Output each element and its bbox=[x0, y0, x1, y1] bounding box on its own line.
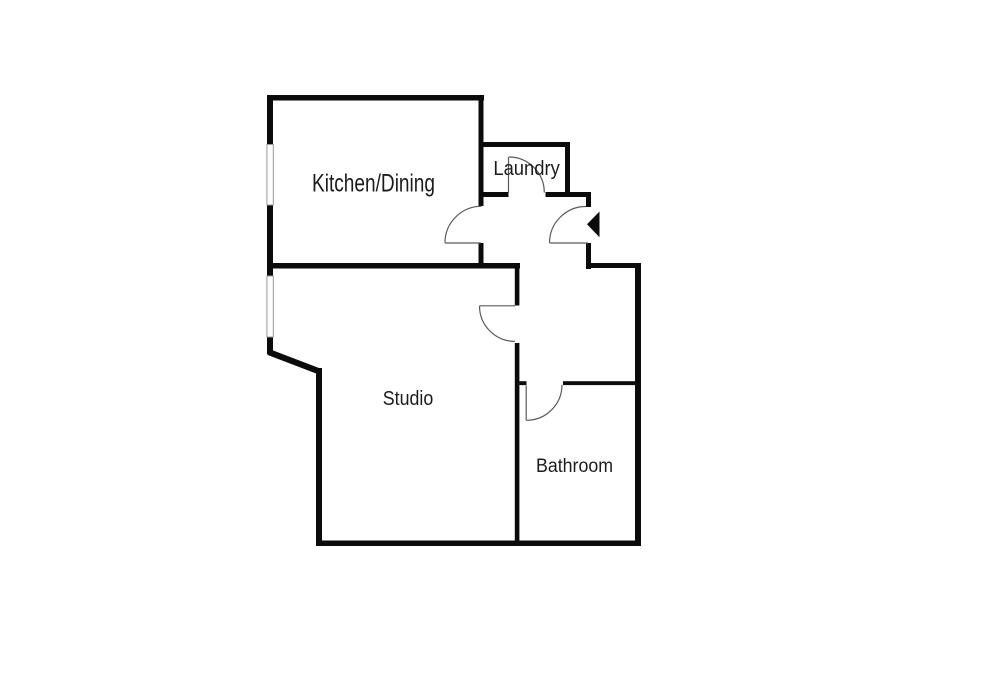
svg-text:Studio: Studio bbox=[383, 388, 434, 410]
svg-text:Kitchen/Dining: Kitchen/Dining bbox=[312, 170, 435, 198]
svg-text:Bathroom: Bathroom bbox=[536, 456, 613, 477]
svg-text:Laundry: Laundry bbox=[493, 158, 560, 180]
